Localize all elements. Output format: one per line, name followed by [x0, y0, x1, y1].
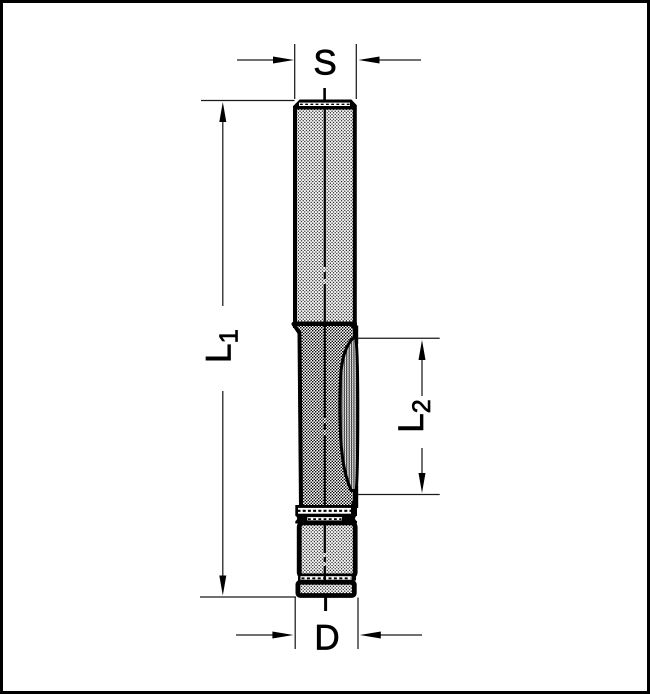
svg-text:S: S [313, 43, 336, 82]
svg-text:D: D [314, 618, 339, 657]
